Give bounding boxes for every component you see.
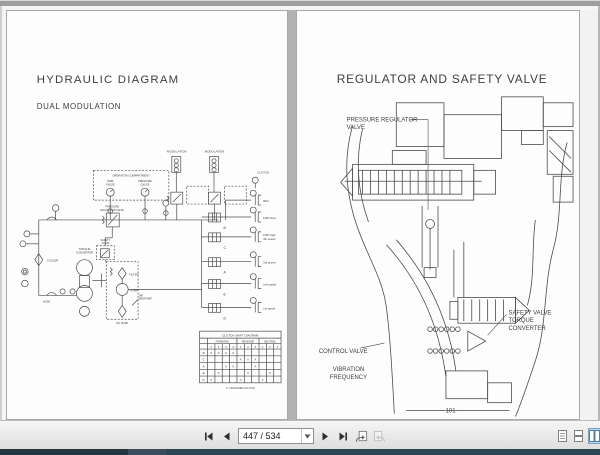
svg-text:GAUGE: GAUGE	[141, 184, 150, 187]
svg-text:X: X	[254, 364, 256, 368]
svg-text:X: X	[247, 358, 249, 362]
table-note: X = ENGAGED CLUTCH	[226, 386, 255, 390]
pump-label: PUMP	[130, 288, 138, 292]
pdf-viewer-window: HYDRAULIC DIAGRAM DUAL MODULATION	[0, 0, 600, 455]
document-background	[580, 10, 598, 420]
svg-text:REVERSE: REVERSE	[242, 339, 255, 343]
svg-text:CONVERTER: CONVERTER	[509, 326, 547, 332]
last-page-icon[interactable]	[337, 429, 350, 444]
window-top-border	[0, 0, 600, 6]
svg-text:X: X	[218, 371, 220, 375]
third-speed-label: 3rd speed	[263, 261, 276, 265]
svg-text:1: 1	[240, 345, 242, 349]
svg-text:E: E	[203, 371, 205, 375]
first-speed-label: 1st speed	[263, 306, 275, 310]
svg-text:X: X	[240, 378, 242, 382]
safety-valve-torque-converter-label: SAFETY VALVE	[509, 310, 552, 316]
page-number-field[interactable]: 447 / 534	[238, 428, 314, 444]
page-number: - 101 -	[442, 409, 459, 415]
svg-text:GAUGE: GAUGE	[106, 184, 115, 187]
first-page-icon[interactable]	[202, 429, 215, 444]
svg-text:FORWARD: FORWARD	[216, 339, 229, 343]
page-dropdown-icon[interactable]	[301, 429, 313, 443]
svg-text:X: X	[210, 378, 212, 382]
cross-section-drawing	[341, 97, 573, 417]
pressure-regulator-valve-label: PRESSURE REGULATOR	[347, 118, 418, 124]
svg-text:B: B	[203, 351, 205, 355]
previous-page-icon[interactable]	[220, 429, 233, 444]
second-speed-label: 2nd speed	[263, 282, 276, 286]
regulator-cross-section: REGULATOR AND SAFETY VALVE	[297, 11, 579, 419]
svg-text:CLUTCH SHIFT DIAGRAM: CLUTCH SHIFT DIAGRAM	[222, 334, 259, 338]
svg-text:4th speed: 4th speed	[263, 237, 276, 241]
svg-text:X: X	[225, 364, 227, 368]
valve-letter-e: E	[223, 292, 226, 296]
page-divider	[288, 10, 296, 420]
cooler-label: COOLER	[47, 259, 59, 263]
svg-text:FREQUENCY: FREQUENCY	[330, 375, 367, 381]
document-page-right: REGULATOR AND SAFETY VALVE	[296, 10, 580, 420]
svg-text:X: X	[240, 358, 242, 362]
valve-letter-c: C	[223, 246, 226, 250]
rev-label: REV	[263, 199, 269, 203]
next-view-icon[interactable]	[373, 429, 386, 444]
svg-text:X: X	[262, 378, 264, 382]
fwd-slow-label: FWD slow	[263, 216, 276, 220]
svg-text:D: D	[203, 378, 205, 382]
svg-text:3: 3	[277, 345, 279, 349]
svg-text:X: X	[269, 371, 271, 375]
valve-letter-a: A	[223, 271, 226, 275]
svg-text:X: X	[232, 351, 234, 355]
svg-text:2: 2	[269, 345, 271, 349]
valve-letter-b: B	[223, 226, 226, 230]
svg-text:BREATHER: BREATHER	[139, 298, 152, 301]
page-subtitle: DUAL MODULATION	[37, 102, 121, 111]
hose-label: HOSE	[43, 299, 51, 303]
svg-text:2: 2	[247, 345, 249, 349]
page-title: HYDRAULIC DIAGRAM	[37, 74, 180, 86]
svg-text:REGULATOR VALVE: REGULATOR VALVE	[101, 209, 125, 212]
clutch-label: CLUTCH	[257, 170, 269, 174]
clutch-shift-table-text: CLUTCH SHIFT DIAGRAMFORWARDREVERSENEUTRA…	[203, 334, 279, 382]
next-page-icon[interactable]	[319, 429, 332, 444]
svg-text:VALVE: VALVE	[102, 242, 110, 245]
single-page-layout-icon[interactable]	[556, 428, 569, 444]
window-left-border	[0, 6, 2, 449]
page-number-value[interactable]: 447 / 534	[239, 431, 301, 441]
svg-text:X: X	[225, 351, 227, 355]
svg-text:NEUTRAL: NEUTRAL	[264, 339, 277, 343]
svg-text:TORQUE: TORQUE	[509, 318, 534, 324]
svg-text:C: C	[203, 358, 206, 362]
svg-text:X: X	[247, 371, 249, 375]
svg-text:1: 1	[210, 345, 212, 349]
svg-text:X: X	[254, 358, 256, 362]
previous-view-icon[interactable]	[355, 429, 368, 444]
svg-text:1: 1	[262, 345, 264, 349]
status-strip-highlight	[128, 449, 166, 455]
page-layout-controls	[556, 427, 600, 445]
control-valve-label: CONTROL VALVE	[319, 349, 368, 355]
svg-text:VALVE: VALVE	[347, 125, 365, 131]
svg-text:A: A	[203, 364, 205, 368]
operator-compartment-label: OPERATOR COMPARTMENT	[112, 173, 150, 177]
svg-text:3: 3	[225, 345, 227, 349]
modulation-label-1: MODULATION	[167, 149, 187, 153]
modulation-label-2: MODULATION	[205, 149, 225, 153]
svg-text:X: X	[210, 351, 212, 355]
svg-text:X: X	[218, 351, 220, 355]
svg-text:CONVERTER: CONVERTER	[76, 250, 93, 254]
svg-text:3: 3	[255, 345, 257, 349]
facing-pages-layout-icon[interactable]	[588, 428, 600, 444]
valve-letter-d: D	[223, 316, 226, 320]
schematic-labels: OPERATOR COMPARTMENT TEMP GAUGE PRESSURE…	[43, 149, 277, 389]
status-strip-segment	[140, 449, 600, 455]
hydraulic-diagram: HYDRAULIC DIAGRAM DUAL MODULATION	[7, 11, 287, 419]
svg-text:2: 2	[218, 345, 220, 349]
cross-section-labels: PRESSURE REGULATOR VALVE CONTROL VALVE V…	[319, 118, 552, 415]
hydraulic-schematic	[20, 156, 281, 382]
filter-label: FILTER	[129, 273, 138, 277]
continuous-layout-icon[interactable]	[572, 428, 585, 444]
oil-sump-label: OIL SUMP	[116, 321, 129, 325]
svg-text:X: X	[232, 364, 234, 368]
svg-text:4: 4	[233, 345, 235, 349]
document-page-left: HYDRAULIC DIAGRAM DUAL MODULATION	[6, 10, 288, 420]
vibration-frequency-label: VIBRATION	[333, 367, 365, 373]
page-navigation: 447 / 534	[202, 427, 386, 445]
page-title: REGULATOR AND SAFETY VALVE	[337, 72, 548, 86]
